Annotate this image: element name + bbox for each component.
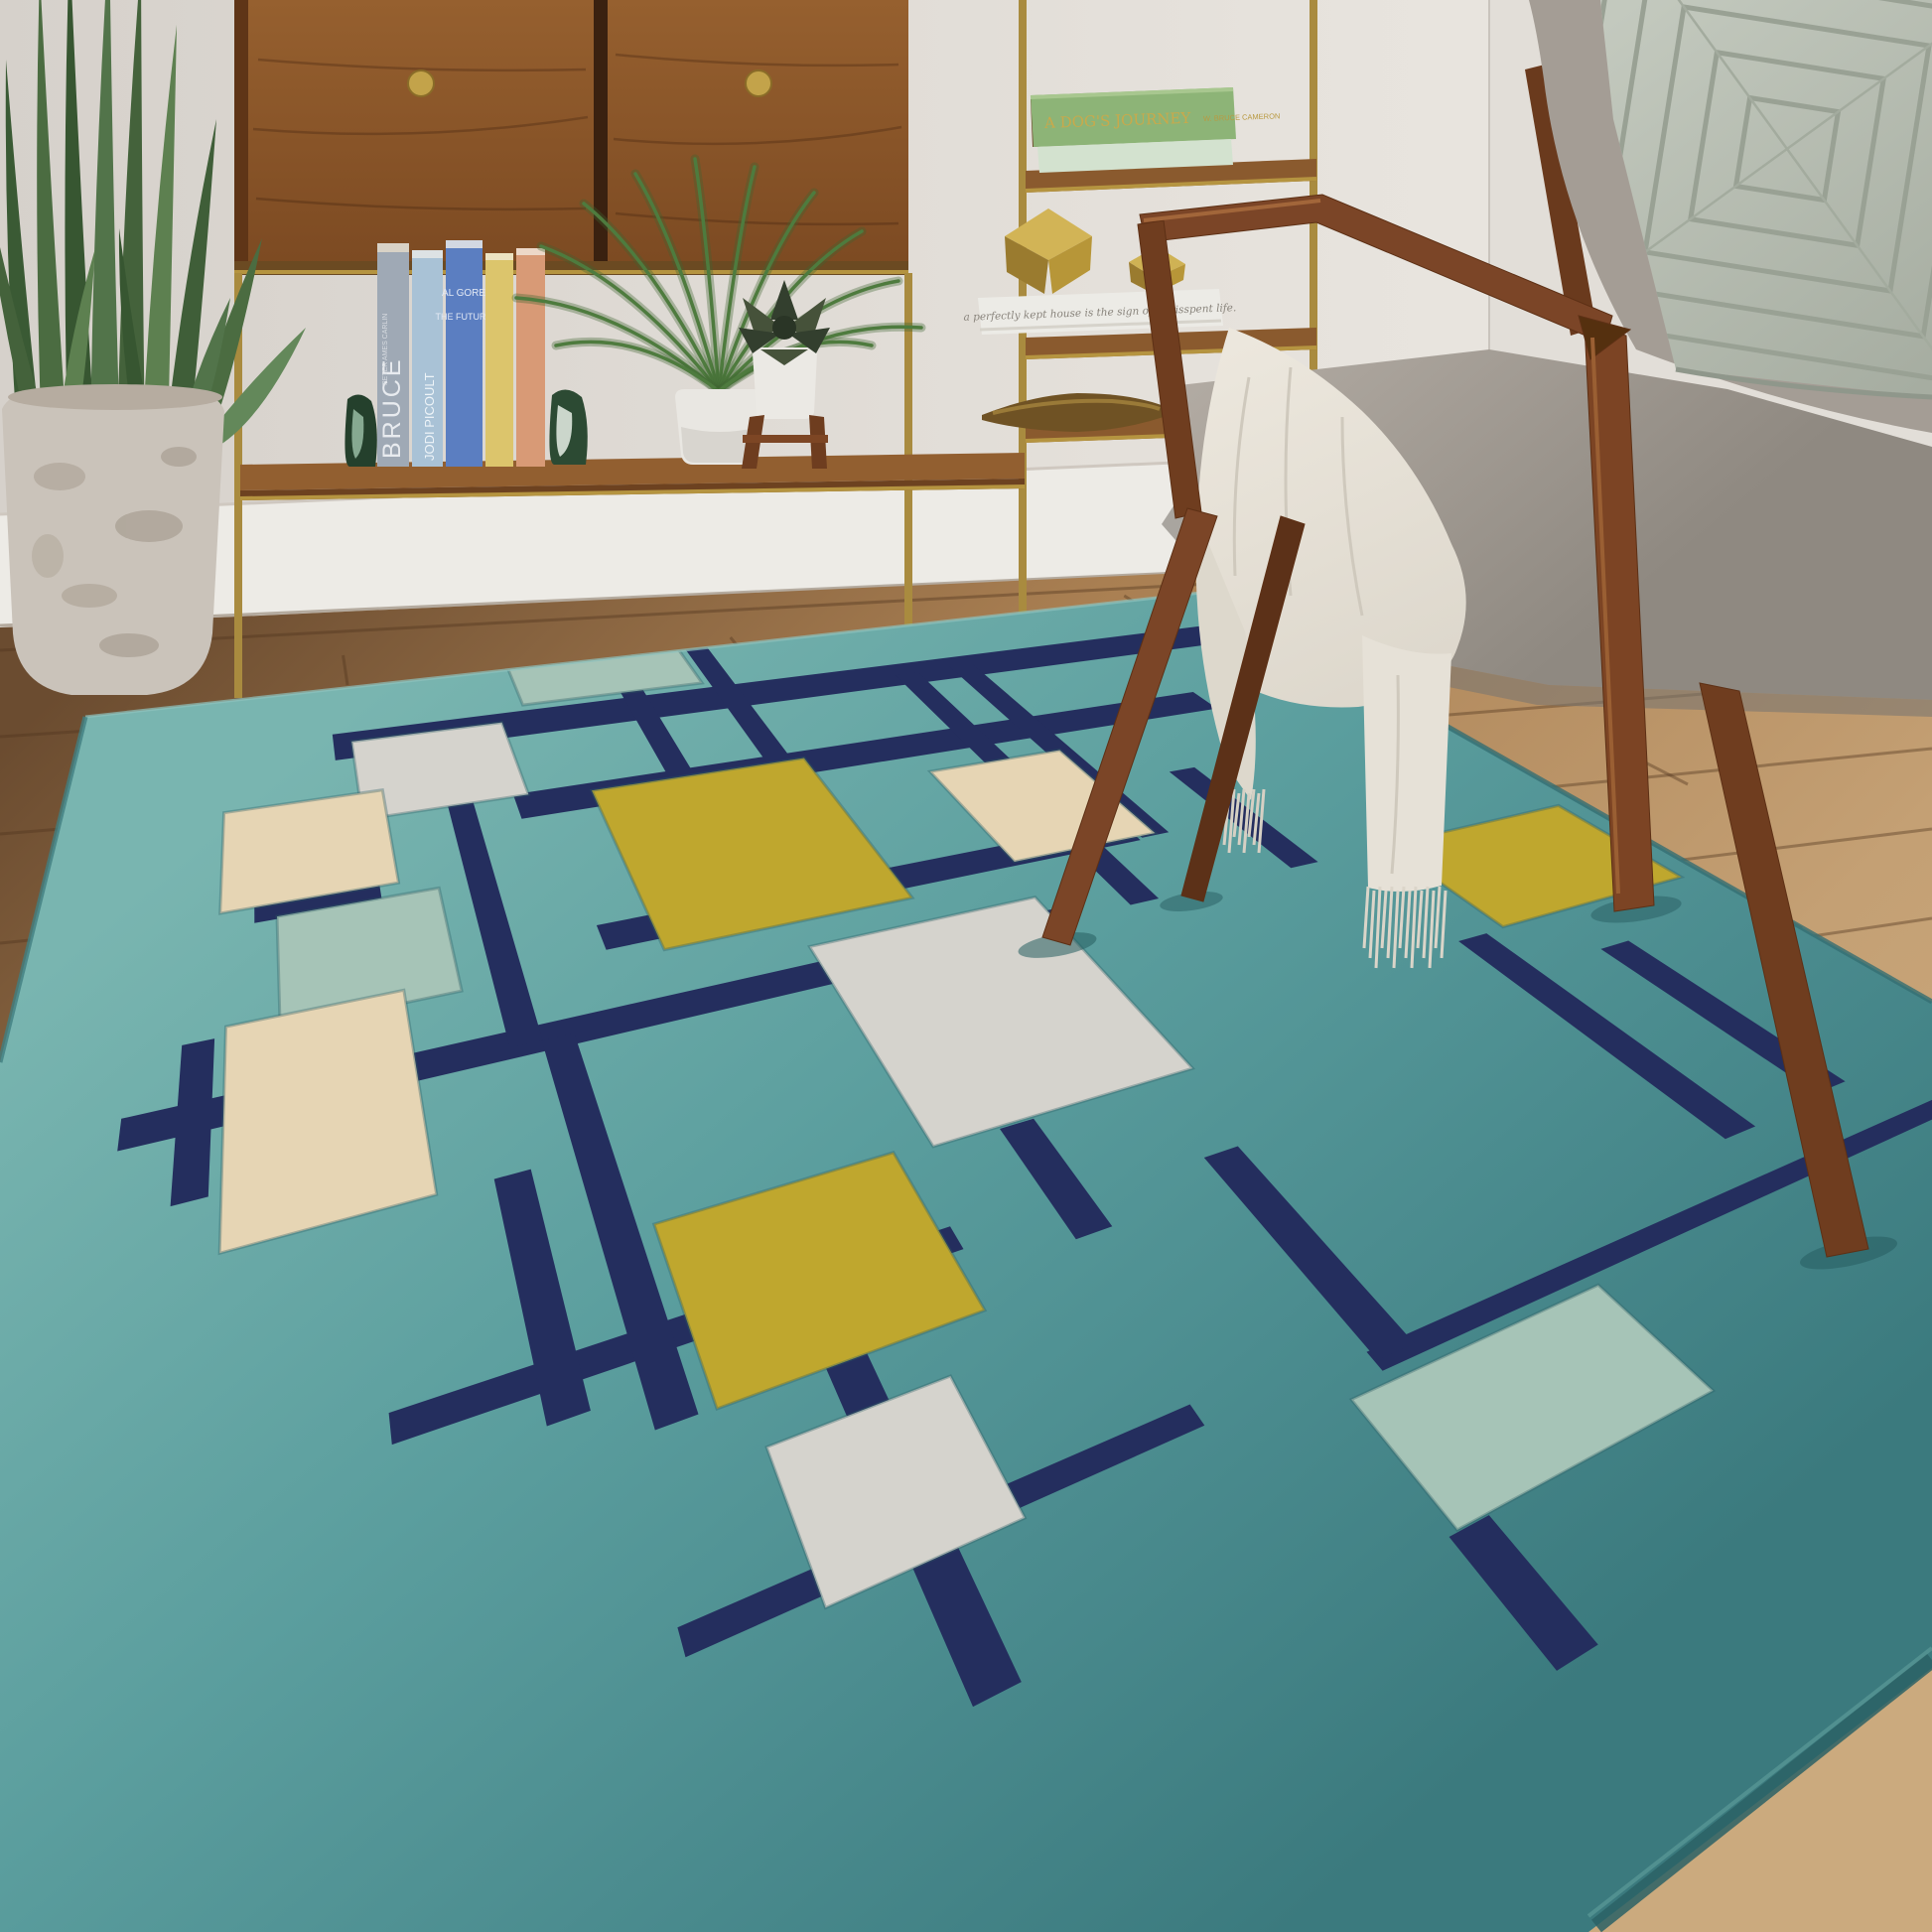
book-gore-title: AL GORE [442,288,485,299]
drawer-left [248,0,594,261]
book-pages-top [412,250,443,258]
drawer-knob-left [408,70,434,96]
book-pages-top [485,253,513,260]
drawer-knob-right [746,70,771,96]
stand-crossbar [743,435,828,443]
blanket-hanging-panel [1362,635,1451,892]
scene: A DOG'S JOURNEY W. BRUCE CAMERON a perfe… [0,0,1932,1932]
book-bruce-author: PETER AMES CARLIN [382,314,389,385]
book-yellow [485,253,513,467]
book-gore-subtitle: THE FUTURE [436,312,492,322]
succulent-center [772,316,796,340]
living-room-photo: A DOG'S JOURNEY W. BRUCE CAMERON a perfe… [0,0,1932,1932]
pot-rim [8,384,222,410]
cabinet-side-panel [234,0,248,273]
book-pages-top [446,240,483,248]
book-picoult-title: JODI PICOULT [422,372,437,461]
book-pages-top [377,243,409,252]
book-gore [446,240,483,467]
brass-leg-mid-right [1019,0,1027,690]
book-salmon [516,248,545,467]
